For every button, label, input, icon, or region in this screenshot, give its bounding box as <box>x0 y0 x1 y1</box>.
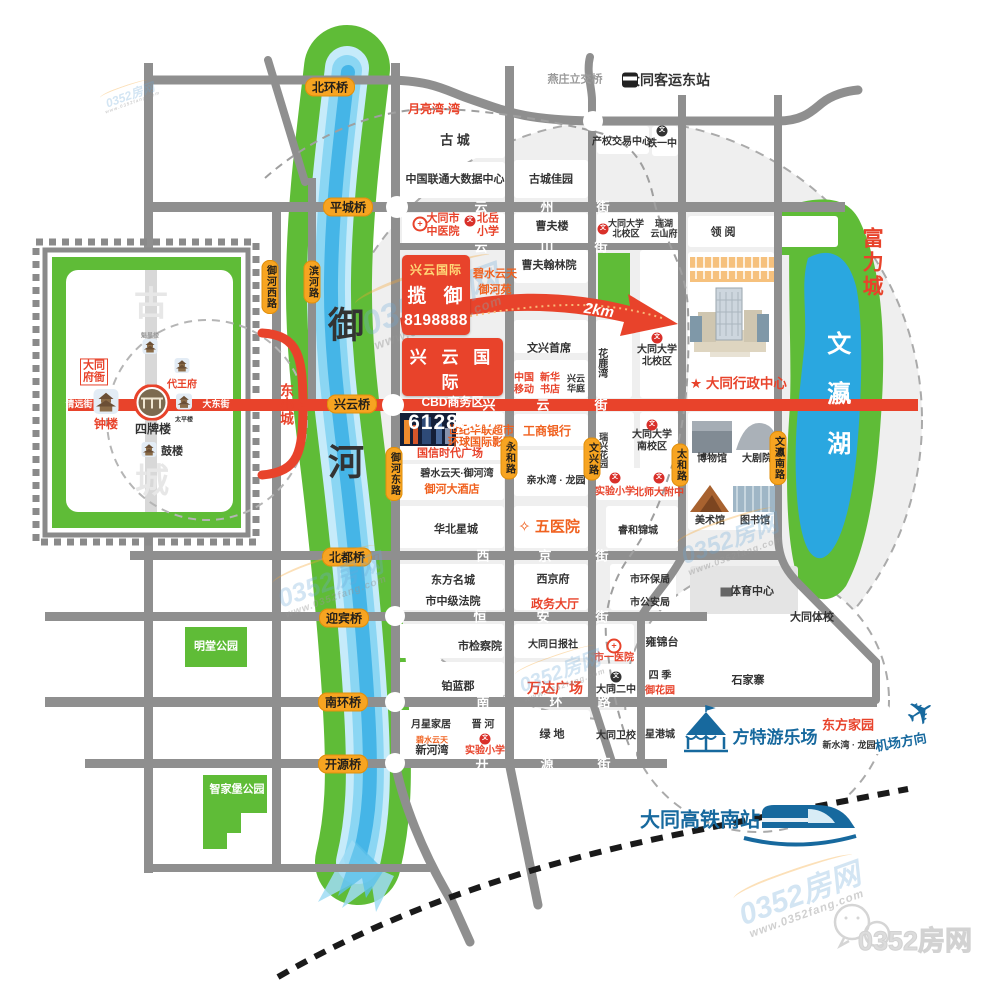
map-label: ✧ 五医院 <box>518 518 580 535</box>
plane-icon: ✈ <box>898 688 943 737</box>
street-name-char: 云 <box>536 395 549 414</box>
map-label: 太平楼 <box>175 418 193 425</box>
datong-location-map: 月亮湾·湾燕庄立交桥大同客运东站古 城中国联通大数据中心古城佳园产权交易中心铁一… <box>0 0 1000 1000</box>
map-label: 古城佳园 <box>529 174 573 187</box>
map-label: 大同体校 <box>790 612 834 625</box>
map-label: 花鹿湾 <box>595 348 607 378</box>
project-box-cbd[interactable]: 兴 云 国 际 CBD商务区 6128888 <box>402 338 503 396</box>
site-watermark: 0352房网www.0352fang.com <box>513 641 606 704</box>
map-label: 智家堡公园 <box>210 784 265 797</box>
street-name-char: 恒 <box>473 607 486 626</box>
street-name-char: 山 <box>540 237 553 256</box>
map-label: 北师大附中 <box>634 487 684 499</box>
street-name-char: 开 <box>475 754 488 773</box>
map-label: 大同大学 南校区 <box>632 430 672 453</box>
map-label: 亲水湾 · 龙园 <box>527 475 586 487</box>
site-watermark: 0352房网www.0352fang.com <box>731 848 868 942</box>
street-name-char: 州 <box>540 197 553 216</box>
map-label: 文瀛湖 <box>822 331 850 481</box>
map-label: 城 <box>135 462 169 501</box>
map-label: 燕庄立交桥 <box>548 74 603 87</box>
bridge-label: 南环桥 <box>318 693 368 712</box>
map-label: 曹夫楼 <box>536 221 569 234</box>
schR-icon: 文 <box>465 216 476 227</box>
map-label: 古 城 <box>440 134 470 149</box>
project-phone: 8198888 <box>402 312 470 330</box>
map-label: 魁星楼 <box>141 334 159 341</box>
bridge-label: 北都桥 <box>322 548 372 567</box>
map-label: 大同二中 <box>596 684 636 696</box>
project-box1-note: 碧水云天 御河苑 <box>473 267 517 299</box>
street-name-char: 京 <box>538 546 551 565</box>
schR-icon: 文 <box>654 473 665 484</box>
street-name-char: 街 <box>595 546 608 565</box>
map-label: 瑞湖 云山府 <box>650 219 677 240</box>
schR-icon: 文 <box>598 224 609 235</box>
road-name-pill: 文瀛南路 <box>770 431 787 485</box>
admin-center-label: ★ 大同行政中心 <box>690 372 787 392</box>
tower-icon <box>143 338 158 360</box>
map-label: 钟楼 <box>94 418 118 432</box>
street-name-char: 环 <box>549 692 562 711</box>
map-label: 碧水云天·御河湾 <box>420 468 493 480</box>
map-label: 西京府 <box>537 574 570 587</box>
schR-icon: 文 <box>480 734 491 745</box>
map-label: 月亮湾·湾 <box>408 103 460 117</box>
road-name-pill: 御河西路 <box>262 260 279 314</box>
site-watermark: 0352房网www.0352fang.com <box>675 502 785 577</box>
map-label: 北岳 小学 <box>477 212 499 237</box>
street-name-char: 云 <box>474 237 487 256</box>
road-name-pill: 永和路 <box>501 437 518 480</box>
map-label: 市检察院 <box>458 641 502 654</box>
project-box-lanyu[interactable]: 兴云国际 揽 御 8198888 <box>402 255 470 335</box>
map-label: 实验小学 <box>595 486 635 498</box>
tower-icon <box>176 394 192 415</box>
map-label: 鼓楼 <box>161 446 183 459</box>
schK-icon: 文 <box>611 672 622 683</box>
project-name: 揽 御 <box>406 281 470 308</box>
map-label: 机场方向 <box>874 731 928 755</box>
map-label: 万达广场 <box>527 680 583 696</box>
map-label: 新华 书店 <box>540 373 560 396</box>
hosp-icon: + <box>607 639 622 654</box>
road-name-pill: 御河东路 <box>386 447 403 501</box>
bridge-label: 平城桥 <box>323 198 373 217</box>
hosp-icon: + <box>413 217 428 232</box>
map-label: 曹夫翰林院 <box>522 260 577 273</box>
street-name-char: 街 <box>595 607 608 626</box>
map-label: 国信时代广场 <box>417 448 483 461</box>
street-name-char: 源 <box>540 754 553 773</box>
map-label: 铂蓝郡 <box>442 681 475 694</box>
tower-icon <box>94 389 119 419</box>
bus-icon <box>622 73 638 88</box>
map-label: 雍锦台 <box>646 637 679 650</box>
map-label: 博物馆 <box>697 453 727 465</box>
site-logo-text: 0352房网 <box>858 919 972 958</box>
map-label: 大同卫校 <box>596 730 636 742</box>
map-label: 富力城 <box>859 227 883 299</box>
map-label: 碧水云天 <box>416 735 448 744</box>
project-brand: 兴 云 国 际 <box>402 343 503 393</box>
street-name-char: 西 <box>476 546 489 565</box>
road-name-pill: 滨河路 <box>304 261 321 304</box>
map-label: 领 阅 <box>710 227 735 240</box>
map-label: 市一医院 <box>594 652 634 664</box>
road-name-pill: 太和路 <box>672 444 689 487</box>
road-name-pill: 文兴路 <box>584 438 601 481</box>
map-label: 华北星城 <box>434 524 478 537</box>
map-label: 四 季 <box>649 670 672 682</box>
project-brand: 兴云国际 <box>402 261 470 278</box>
map-label: 政务大厅 <box>531 598 579 612</box>
map-label: 市中级法院 <box>426 596 481 609</box>
map-label: 大剧院 <box>742 453 772 465</box>
map-label: 东小城 <box>279 383 295 425</box>
project-phone: 6128888 <box>402 411 503 435</box>
bld-icon <box>721 588 732 597</box>
map-label: 代王府 <box>167 379 197 391</box>
map-label: 古 <box>134 285 168 324</box>
bridge-label: 迎宾桥 <box>319 609 369 628</box>
map-label: 大同客运东站 <box>626 72 710 88</box>
site-watermark: 0352房网www.0352fang.com <box>99 75 161 115</box>
map-label: 新河湾 <box>416 745 449 758</box>
map-label: 大同大学 北校区 <box>637 345 677 368</box>
map-label: 御花园 <box>645 685 675 697</box>
street-name-char: 安 <box>536 607 549 626</box>
street-name-char: 路 <box>597 692 610 711</box>
map-label: 大东街 <box>202 399 229 409</box>
label-layer: 月亮湾·湾燕庄立交桥大同客运东站古 城中国联通大数据中心古城佳园产权交易中心铁一… <box>0 0 1000 1000</box>
map-label: 文兴首席 <box>527 343 571 356</box>
map-label: 方特游乐场 <box>733 728 818 748</box>
map-label: 石家寨 <box>732 675 765 688</box>
map-label: 体育中心 <box>730 586 774 599</box>
map-label: 东方名城 <box>431 575 475 588</box>
map-label: 明堂公园 <box>194 641 238 654</box>
map-label: 大同 府衙 <box>80 358 108 385</box>
map-label: 御河大酒店 <box>425 484 480 497</box>
sipailou-icon <box>134 385 170 426</box>
map-label: 图书馆 <box>740 515 770 527</box>
map-label: 四牌楼 <box>135 423 171 437</box>
map-label: 实验小学 <box>465 745 505 757</box>
map-label: 大同大学 北校区 <box>608 219 644 240</box>
map-label: 市公安局 <box>630 597 670 609</box>
street-name-char: 街 <box>596 197 609 216</box>
map-label: 御 <box>328 304 364 345</box>
map-label: 晋 河 <box>472 719 495 731</box>
street-name-char: 南 <box>476 692 489 711</box>
map-label: 大同日报社 <box>528 639 578 651</box>
map-label: 星港城 <box>645 729 675 741</box>
map-label: 美术馆 <box>695 515 725 527</box>
map-label: 产权交易中心 <box>592 136 652 148</box>
street-name-char: 街 <box>594 237 607 256</box>
map-label: 河 <box>328 441 364 482</box>
street-name-char: 云 <box>474 197 487 216</box>
map-label: 市环保局 <box>630 574 670 586</box>
map-label: 中国 移动 <box>514 373 534 396</box>
project-name: CBD商务区 <box>402 393 503 410</box>
schR-icon: 文 <box>610 473 621 484</box>
map-label: 绿 地 <box>539 729 564 742</box>
map-label: 东方家园 <box>822 719 874 734</box>
map-label: 睿和锦城 <box>618 525 658 537</box>
map-label: 铁一中 <box>647 138 677 150</box>
bridge-label: 兴云桥 <box>327 395 377 414</box>
street-name-char: 街 <box>597 754 610 773</box>
bridge-label: 开源桥 <box>318 755 368 774</box>
map-label: 大同高铁南站 <box>640 810 760 833</box>
site-logo: 0352房网 <box>858 919 972 958</box>
bridge-label: 北环桥 <box>305 78 355 97</box>
map-label: 新水湾 · 龙园 <box>823 740 876 750</box>
map-label: 清远街 <box>65 399 92 409</box>
map-label: 月星家居 <box>411 719 451 731</box>
tower-icon <box>142 441 157 463</box>
tower-icon <box>174 358 191 378</box>
street-name-char: 街 <box>594 395 607 414</box>
map-label: 大同市 中医院 <box>427 212 460 237</box>
schR-icon: 文 <box>647 420 658 431</box>
schR-icon: 文 <box>652 333 663 344</box>
map-label: 中国联通大数据中心 <box>406 174 505 187</box>
map-label: 兴云 华庭 <box>567 374 585 395</box>
schK-icon: 文 <box>657 126 668 137</box>
map-label: 工商银行 <box>523 425 571 439</box>
